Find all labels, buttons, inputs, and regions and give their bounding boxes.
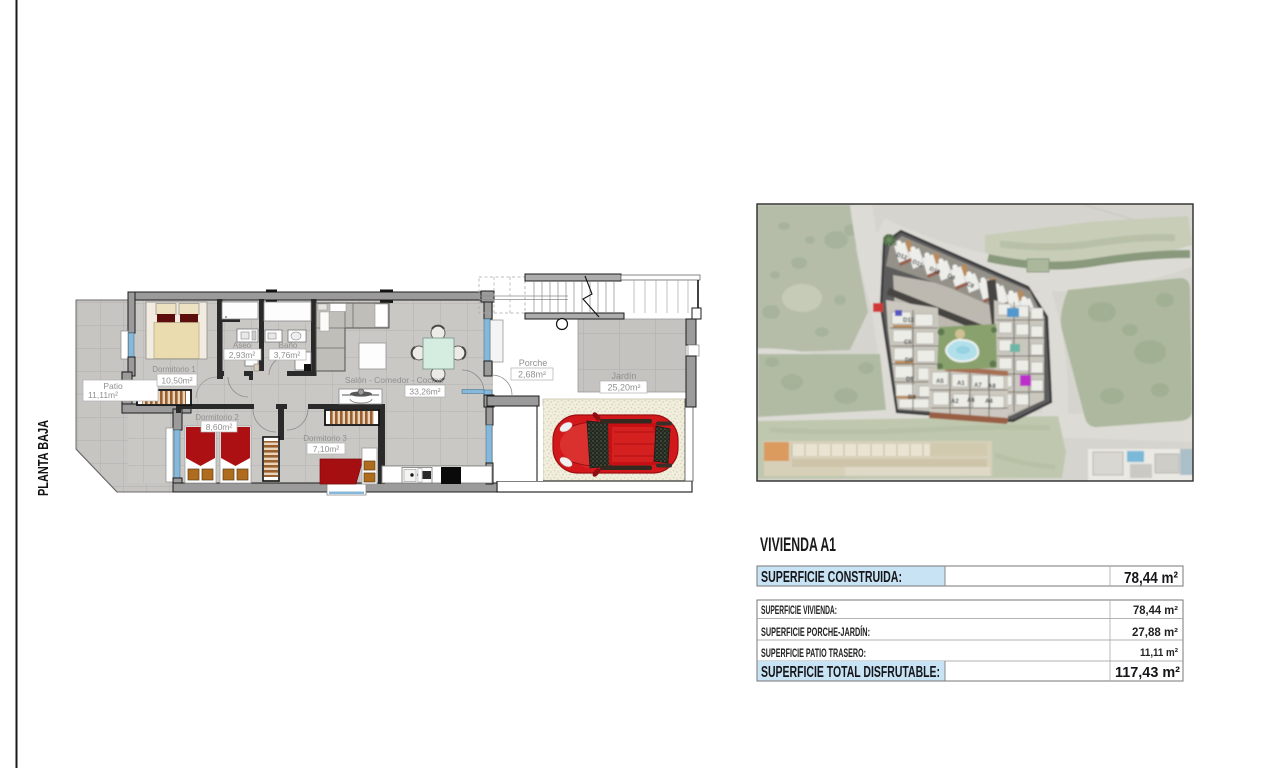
svg-text:VIVIENDA A1: VIVIENDA A1 <box>760 535 836 556</box>
svg-text:Jardín: Jardín <box>611 371 636 381</box>
svg-text:Aseo: Aseo <box>233 341 252 350</box>
svg-text:8,60m²: 8,60m² <box>206 422 233 432</box>
svg-text:78,44 m²: 78,44 m² <box>1133 605 1178 617</box>
svg-text:2,93m²: 2,93m² <box>229 350 256 360</box>
svg-text:Dormitorio 2: Dormitorio 2 <box>195 413 239 422</box>
svg-text:Porche: Porche <box>519 358 548 368</box>
svg-text:SUPERFICIE TOTAL DISFRUTABLE:: SUPERFICIE TOTAL DISFRUTABLE: <box>761 664 940 681</box>
svg-text:SUPERFICIE PATIO TRASERO:: SUPERFICIE PATIO TRASERO: <box>761 646 866 660</box>
svg-text:11,11 m²: 11,11 m² <box>1140 647 1178 659</box>
svg-text:3,76m²: 3,76m² <box>274 350 301 360</box>
svg-text:10,50m²: 10,50m² <box>161 376 192 386</box>
svg-text:33,26m²: 33,26m² <box>409 387 440 397</box>
svg-text:SUPERFICIE VIVIENDA:: SUPERFICIE VIVIENDA: <box>761 603 837 617</box>
svg-text:117,43 m²: 117,43 m² <box>1115 664 1180 681</box>
svg-text:SUPERFICIE PORCHE-JARDÍN:: SUPERFICIE PORCHE-JARDÍN: <box>761 624 870 639</box>
svg-text:Dormitorio 1: Dormitorio 1 <box>152 365 196 374</box>
svg-text:Baño: Baño <box>279 341 298 350</box>
svg-text:2,68m²: 2,68m² <box>518 370 546 380</box>
svg-text:SUPERFICIE CONSTRUIDA:: SUPERFICIE CONSTRUIDA: <box>761 569 902 586</box>
svg-text:Salón - Comedor - Cocina: Salón - Comedor - Cocina <box>345 375 444 385</box>
svg-text:25,20m²: 25,20m² <box>607 383 640 393</box>
svg-text:78,44 m²: 78,44 m² <box>1124 570 1178 587</box>
svg-text:7,10m²: 7,10m² <box>313 444 340 454</box>
svg-text:11,11m²: 11,11m² <box>88 390 118 400</box>
svg-text:Dormitorio 3: Dormitorio 3 <box>303 434 347 443</box>
svg-text:PLANTA BAJA: PLANTA BAJA <box>36 420 52 496</box>
svg-text:27,88 m²: 27,88 m² <box>1132 627 1178 639</box>
